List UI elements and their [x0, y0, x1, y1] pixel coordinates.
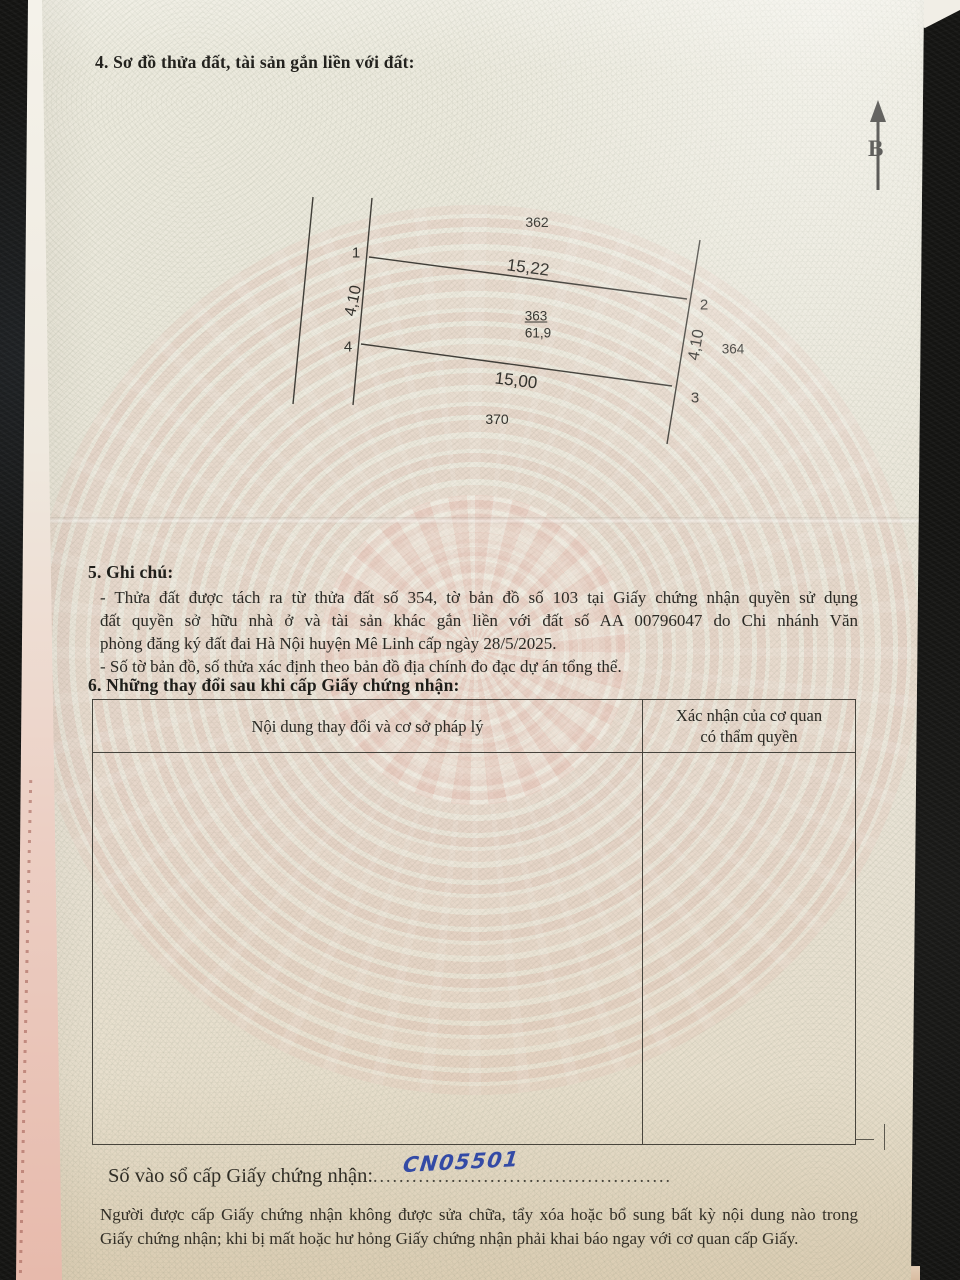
note-line-3: phòng đăng ký đất đai Hà Nội huyện Mê Li… [100, 632, 858, 655]
corner-point-3: 3 [691, 390, 699, 407]
col2-header: Xác nhận của cơ quan có thẩm quyền [643, 700, 855, 753]
north-label: B [868, 136, 883, 162]
footer-line-2: Giấy chứng nhận; khi bị mất hoặc hư hỏng… [100, 1227, 858, 1251]
col2-header-line1: Xác nhận của cơ quan [676, 705, 822, 726]
parcel-area: 61,9 [525, 326, 551, 341]
section6-title: 6. Những thay đổi sau khi cấp Giấy chứng… [88, 675, 460, 696]
dotted-leader-start: .... [373, 1166, 399, 1186]
corner-point-4: 4 [344, 339, 352, 356]
col2-header-line2: có thẩm quyền [700, 726, 797, 747]
footer-line-1: Người được cấp Giấy chứng nhận không đượ… [100, 1203, 858, 1227]
photographed-certificate: 4. Sơ đồ thửa đất, tài sản gắn liền với … [0, 0, 960, 1280]
registry-label: Số vào sổ cấp Giấy chứng nhận: [108, 1165, 373, 1187]
adjacent-parcel-top: 362 [525, 214, 548, 230]
plot-diagram [280, 190, 740, 460]
certificate-page: 4. Sơ đồ thửa đất, tài sản gắn liền với … [0, 0, 960, 1280]
changes-table-col2: Xác nhận của cơ quan có thẩm quyền [643, 700, 855, 1144]
section5-title: 5. Ghi chú: [88, 562, 173, 583]
table-corner-tick-vertical [884, 1124, 885, 1150]
table-corner-tick-horizontal [856, 1139, 874, 1140]
fold-crease [42, 517, 922, 524]
col1-header-text: Nội dung thay đổi và cơ sở pháp lý [252, 716, 484, 737]
note-line-1: - Thửa đất được tách ra từ thửa đất số 3… [100, 586, 858, 609]
note-line-2: đất quyền sở hữu nhà ở và tài sản khác g… [100, 609, 858, 632]
adjacent-parcel-right: 364 [722, 342, 745, 357]
adjacent-parcel-bottom: 370 [485, 411, 508, 427]
changes-table-col1: Nội dung thay đổi và cơ sở pháp lý [93, 700, 643, 1144]
col1-header: Nội dung thay đổi và cơ sở pháp lý [93, 700, 642, 753]
corner-point-1: 1 [352, 245, 360, 262]
north-arrow-icon: B [856, 98, 902, 198]
changes-table: Nội dung thay đổi và cơ sở pháp lý Xác n… [92, 699, 856, 1145]
neighbor-boundary-line-left [293, 197, 313, 404]
section4-title: 4. Sơ đồ thửa đất, tài sản gắn liền với … [95, 52, 415, 73]
registry-fill-zone: CN05501.................................… [399, 1165, 672, 1188]
parcel-number: 363 [525, 309, 548, 324]
corner-point-2: 2 [700, 297, 708, 314]
registry-number-row: Số vào sổ cấp Giấy chứng nhận:....CN0550… [108, 1165, 672, 1188]
